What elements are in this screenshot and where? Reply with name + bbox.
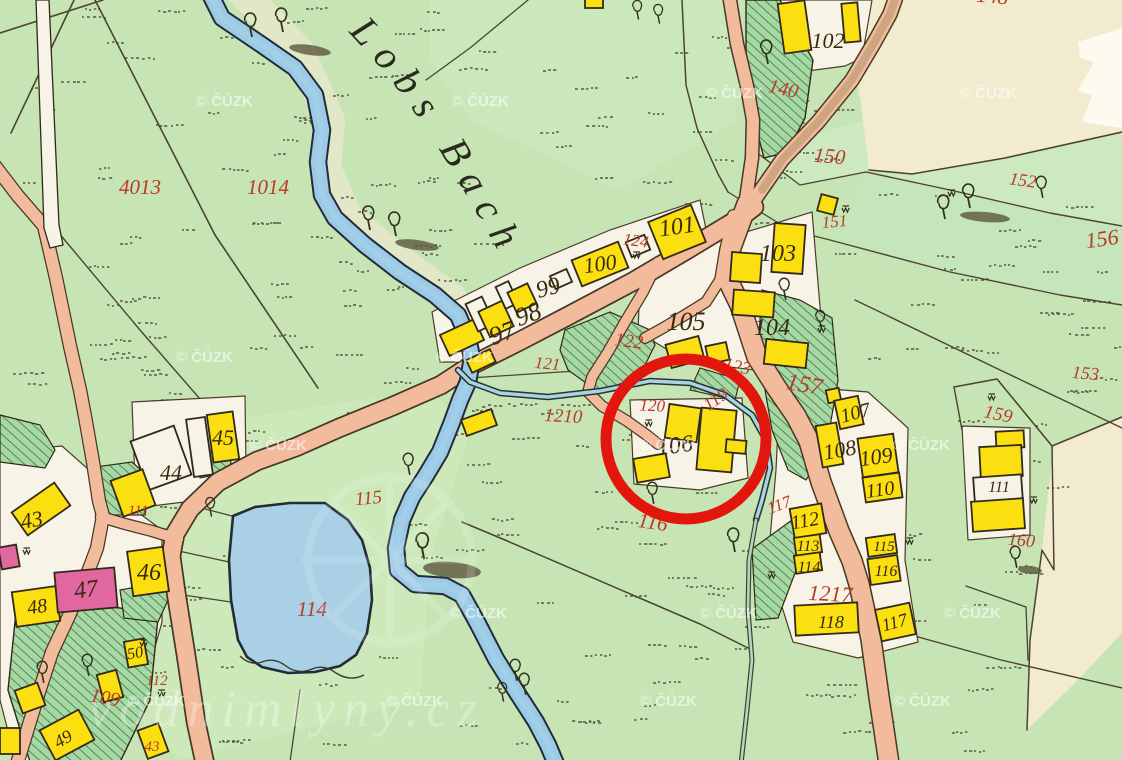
svg-text:103: 103 — [760, 241, 796, 267]
svg-text:104: 104 — [754, 315, 790, 341]
svg-text:114: 114 — [798, 559, 821, 576]
svg-text:152: 152 — [1008, 168, 1038, 192]
svg-text:153: 153 — [1071, 362, 1100, 384]
svg-text:105: 105 — [667, 307, 706, 336]
svg-text:100: 100 — [582, 249, 618, 278]
svg-text:© ČÚZK: © ČÚZK — [250, 436, 307, 454]
svg-text:115: 115 — [873, 539, 895, 555]
svg-text:43: 43 — [145, 739, 160, 755]
svg-text:43: 43 — [19, 505, 45, 533]
svg-text:1217: 1217 — [808, 580, 854, 607]
svg-text:113: 113 — [797, 538, 820, 555]
svg-text:© ČÚZK: © ČÚZK — [196, 92, 253, 110]
svg-text:© ČÚZK: © ČÚZK — [706, 84, 763, 102]
svg-text:© ČÚZK: © ČÚZK — [452, 92, 509, 110]
svg-text:vodnimlyny.cz: vodnimlyny.cz — [88, 681, 485, 738]
svg-text:122: 122 — [613, 329, 645, 354]
svg-text:109: 109 — [858, 442, 894, 471]
svg-text:© ČÚZK: © ČÚZK — [640, 692, 697, 710]
svg-text:111: 111 — [988, 479, 1010, 496]
svg-text:118: 118 — [818, 612, 844, 632]
svg-text:© ČÚZK: © ČÚZK — [894, 692, 951, 710]
svg-text:© ČÚZK: © ČÚZK — [176, 348, 233, 366]
svg-text:48: 48 — [26, 595, 49, 620]
svg-text:116: 116 — [875, 563, 898, 580]
svg-text:110: 110 — [865, 477, 896, 503]
svg-text:111: 111 — [128, 503, 148, 519]
svg-text:121: 121 — [534, 353, 561, 374]
svg-text:© ČÚZK: © ČÚZK — [700, 604, 757, 622]
svg-text:102: 102 — [812, 28, 845, 53]
svg-text:© ČÚZK: © ČÚZK — [893, 436, 950, 454]
svg-text:120: 120 — [639, 395, 666, 415]
svg-text:124: 124 — [622, 229, 650, 251]
svg-text:50: 50 — [126, 644, 145, 664]
svg-text:160: 160 — [1007, 529, 1036, 551]
svg-text:156: 156 — [1084, 224, 1120, 253]
svg-text:1014: 1014 — [247, 175, 290, 199]
svg-text:151: 151 — [821, 211, 848, 232]
svg-text:1210: 1210 — [544, 405, 584, 428]
svg-text:© ČÚZK: © ČÚZK — [944, 604, 1001, 622]
svg-text:46: 46 — [137, 560, 161, 586]
svg-text:45: 45 — [212, 425, 234, 450]
svg-text:47: 47 — [72, 575, 100, 604]
svg-text:© ČÚZK: © ČÚZK — [436, 348, 493, 366]
svg-text:44: 44 — [160, 460, 182, 485]
svg-text:101: 101 — [657, 212, 696, 243]
svg-text:© ČÚZK: © ČÚZK — [640, 436, 697, 454]
svg-text:150: 150 — [813, 143, 847, 170]
svg-text:© ČÚZK: © ČÚZK — [960, 84, 1017, 102]
svg-text:4013: 4013 — [119, 175, 161, 199]
svg-text:115: 115 — [354, 487, 383, 510]
